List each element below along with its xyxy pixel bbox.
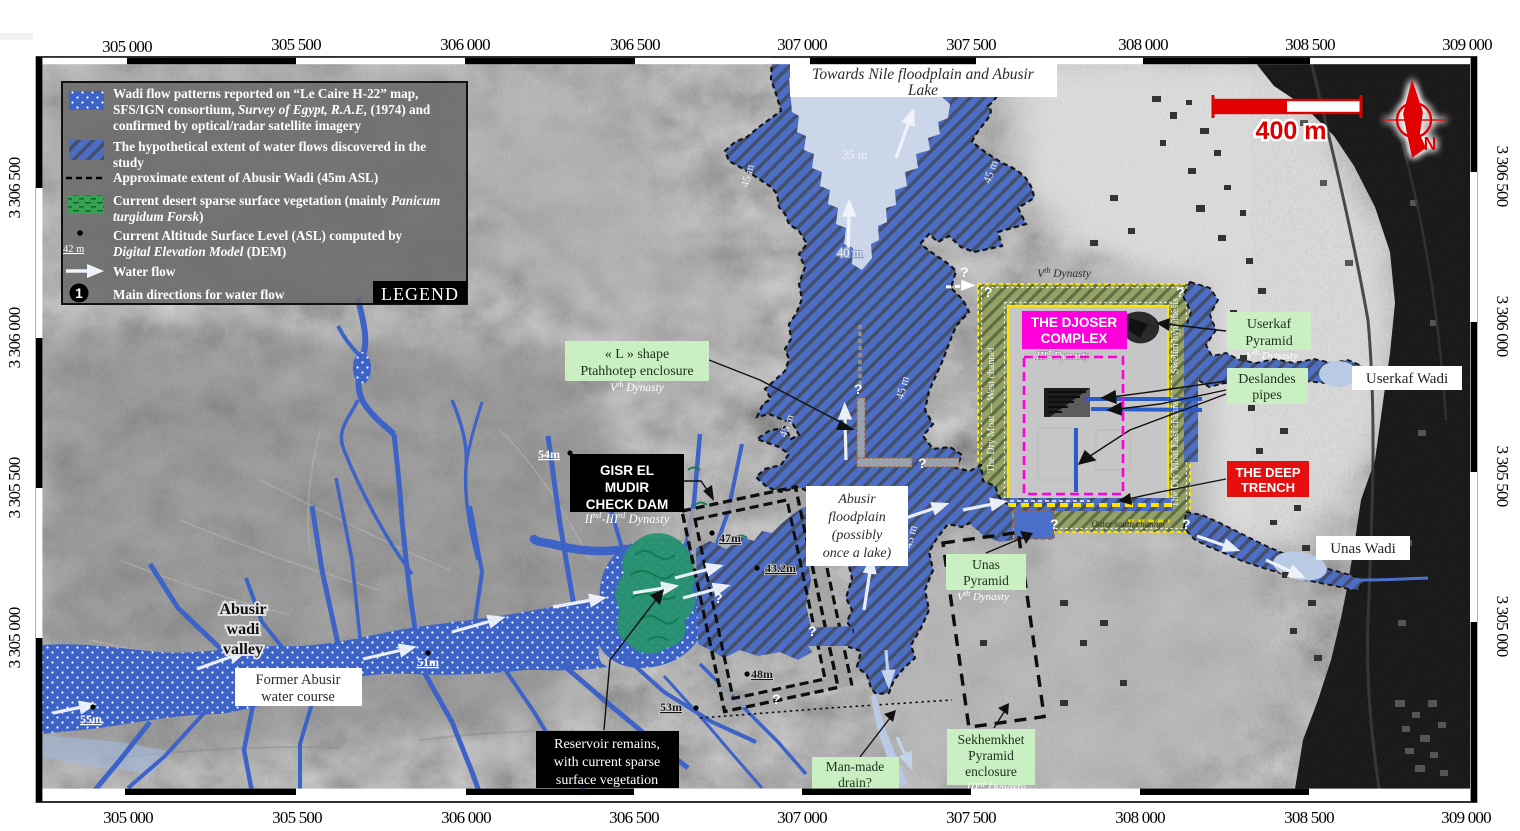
svg-text:pipes: pipes: [1252, 388, 1282, 403]
svg-text:400 m: 400 m: [1256, 117, 1327, 145]
svg-text:48m: 48m: [751, 667, 773, 681]
svg-text:306 000: 306 000: [440, 35, 490, 54]
svg-text:water course: water course: [261, 689, 335, 705]
svg-text:The Dry Moat — West channel: The Dry Moat — West channel: [986, 347, 997, 473]
svg-text:Main directions for water flow: Main directions for water flow: [113, 287, 285, 302]
svg-text:GISR EL: GISR EL: [600, 463, 654, 478]
svg-text:309 000: 309 000: [1441, 808, 1491, 827]
svg-text:?: ?: [1182, 516, 1191, 532]
svg-text:Digital Elevation Model (DEM): Digital Elevation Model (DEM): [112, 244, 286, 259]
svg-text:Reservoir remains,: Reservoir remains,: [554, 737, 660, 752]
svg-text:3 306 000: 3 306 000: [5, 307, 24, 368]
svg-text:TRENCH: TRENCH: [1241, 480, 1295, 495]
svg-text:305 000: 305 000: [103, 808, 153, 827]
svg-text:Unas: Unas: [972, 557, 1000, 572]
svg-text:THE DEEP: THE DEEP: [1235, 465, 1300, 480]
svg-text:3 306 500: 3 306 500: [5, 157, 24, 218]
svg-text:40 m: 40 m: [837, 246, 863, 260]
svg-text:3 305 500: 3 305 500: [1493, 446, 1512, 507]
svg-text:51m: 51m: [417, 655, 439, 669]
svg-text:42 m: 42 m: [63, 244, 84, 255]
svg-text:47m: 47m: [719, 531, 741, 545]
svg-text:« L » shape: « L » shape: [605, 347, 669, 362]
svg-text:turgidum Forsk): turgidum Forsk): [113, 209, 204, 224]
svg-text:308 000: 308 000: [1115, 808, 1165, 827]
svg-text:confirmed by optical/radar sat: confirmed by optical/radar satellite ima…: [113, 118, 361, 133]
svg-text:once a lake): once a lake): [823, 546, 892, 561]
svg-text:Towards Nile floodplain and Ab: Towards Nile floodplain and Abusir: [812, 66, 1035, 83]
svg-text:307 000: 307 000: [777, 808, 827, 827]
svg-text:study: study: [113, 155, 144, 170]
svg-text:Abusir: Abusir: [837, 492, 876, 507]
svg-text:308 500: 308 500: [1285, 35, 1335, 54]
svg-text:Current desert sparse surface: Current desert sparse surface vegetation…: [113, 193, 440, 208]
svg-text:308 500: 308 500: [1284, 808, 1334, 827]
svg-text:306 500: 306 500: [609, 808, 659, 827]
svg-text:?: ?: [1176, 284, 1185, 300]
svg-text:Current Altitude Surface Level: Current Altitude Surface Level (ASL) com…: [113, 228, 403, 243]
svg-text:307 500: 307 500: [946, 808, 996, 827]
svg-text:Ptahhotep enclosure: Ptahhotep enclosure: [580, 364, 693, 379]
svg-text:(possibly: (possibly: [832, 528, 883, 543]
svg-text:Outer south channel: Outer south channel: [1091, 519, 1165, 529]
svg-text:43.2m: 43.2m: [765, 561, 796, 575]
svg-text:enclosure: enclosure: [965, 764, 1017, 779]
svg-text:309 000: 309 000: [1442, 35, 1492, 54]
svg-text:Abusir: Abusir: [219, 601, 266, 618]
svg-text:?: ?: [854, 381, 863, 397]
svg-text:Wadi flow patterns reported on: Wadi flow patterns reported on “Le Caire…: [113, 86, 418, 101]
svg-text:35 m: 35 m: [842, 148, 868, 162]
svg-text:306 000: 306 000: [441, 808, 491, 827]
svg-text:surface vegetation: surface vegetation: [556, 773, 658, 788]
svg-text:3 306 500: 3 306 500: [1493, 146, 1512, 207]
svg-text:floodplain: floodplain: [828, 510, 886, 525]
svg-text:valley: valley: [223, 641, 263, 658]
svg-text:Man-made: Man-made: [826, 759, 884, 774]
svg-text:SFS/IGN consortium, Survey of: SFS/IGN consortium, Survey of Egypt, R.A…: [113, 102, 431, 117]
svg-text:N: N: [1424, 134, 1437, 154]
svg-text:drain?: drain?: [838, 775, 872, 790]
svg-text:with current sparse: with current sparse: [554, 755, 661, 770]
svg-text:Approximate extent of Abusir W: Approximate extent of Abusir Wadi (45m A…: [113, 170, 378, 185]
svg-text:305 000: 305 000: [102, 37, 152, 56]
svg-text:54m: 54m: [538, 447, 560, 461]
svg-text:305 500: 305 500: [272, 808, 322, 827]
svg-text:Water flow: Water flow: [113, 264, 176, 279]
svg-text:3 305 000: 3 305 000: [1493, 596, 1512, 657]
svg-text:307 500: 307 500: [946, 35, 996, 54]
svg-text:53m: 53m: [660, 700, 682, 714]
svg-text:THE DJOSER: THE DJOSER: [1031, 315, 1118, 330]
svg-text:wadi: wadi: [227, 621, 260, 638]
svg-text:IIId Dynasty: IIId Dynasty: [1035, 348, 1090, 363]
svg-text:?: ?: [1050, 516, 1059, 532]
svg-text:Unas Wadi: Unas Wadi: [1330, 541, 1396, 557]
svg-text:3 306 000: 3 306 000: [1493, 296, 1512, 357]
svg-text:Sekhemkhet: Sekhemkhet: [958, 732, 1025, 747]
svg-text:Deslandes: Deslandes: [1238, 372, 1296, 387]
svg-text:Userkaf: Userkaf: [1247, 317, 1292, 332]
svg-text:COMPLEX: COMPLEX: [1041, 331, 1108, 346]
svg-text:1: 1: [75, 286, 83, 301]
svg-text:?: ?: [984, 284, 993, 300]
svg-text:?: ?: [918, 455, 927, 471]
svg-text:307 000: 307 000: [777, 35, 827, 54]
svg-text:Userkaf Wadi: Userkaf Wadi: [1366, 371, 1448, 387]
svg-text:MUDIR: MUDIR: [605, 480, 649, 495]
svg-text:Swelim hypothesis: Swelim hypothesis: [1170, 298, 1181, 374]
svg-text:3 305 000: 3 305 000: [5, 607, 24, 668]
svg-text:55m: 55m: [80, 712, 102, 726]
svg-text:305 500: 305 500: [271, 35, 321, 54]
svg-text:Pyramid: Pyramid: [963, 573, 1009, 588]
svg-text:3 305 500: 3 305 500: [5, 457, 24, 518]
svg-text:308 000: 308 000: [1118, 35, 1168, 54]
svg-text:306 500: 306 500: [610, 35, 660, 54]
svg-text:?: ?: [714, 590, 723, 606]
svg-text:LEGEND: LEGEND: [381, 284, 459, 304]
svg-text:?: ?: [772, 691, 781, 707]
svg-text:The hypothetical extent of wat: The hypothetical extent of water flows d…: [113, 139, 426, 154]
svg-text:?: ?: [960, 264, 969, 280]
svg-text:Lake: Lake: [907, 82, 938, 99]
svg-text:Former Abusir: Former Abusir: [256, 672, 341, 688]
svg-text:Pyramid: Pyramid: [968, 748, 1014, 763]
svg-text:?: ?: [808, 623, 817, 639]
